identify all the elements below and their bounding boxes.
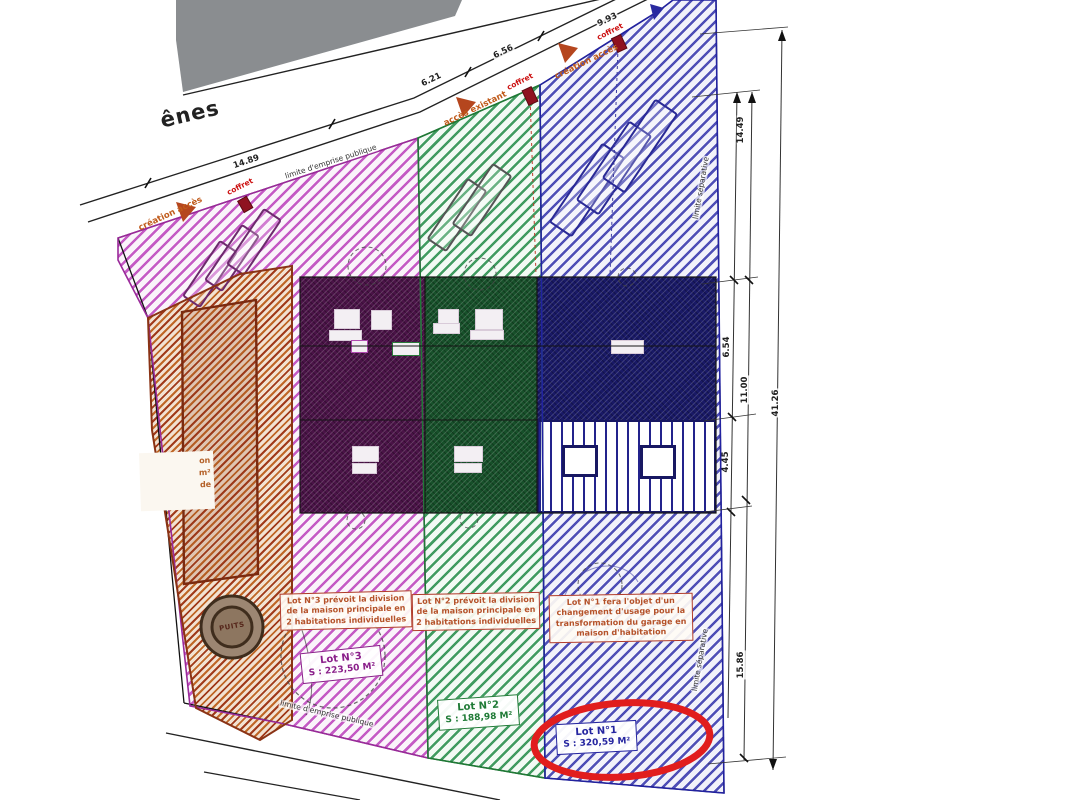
neighbor-label-box: on m² de xyxy=(139,451,215,512)
terrain-contour xyxy=(565,566,638,595)
access-arrows xyxy=(176,43,578,222)
lot-1-label-box: Lot N°1 S : 320,59 M² xyxy=(555,720,638,755)
neighbor-label-line: on xyxy=(199,456,211,465)
dimension-label-right-4: 4.45 xyxy=(722,451,731,474)
building-outline xyxy=(300,277,716,513)
road-edge-line xyxy=(204,772,360,800)
lot-3-note: Lot N°3 prévoit la division de la maison… xyxy=(280,590,413,631)
lot-2-label-box: Lot N°2 S : 188,98 M² xyxy=(437,694,520,730)
dimension-label-right-6: 15.86 xyxy=(737,651,746,680)
dimension-chain-line xyxy=(80,0,655,205)
neighbor-label-line: de xyxy=(200,480,211,489)
dimension-label-right-2: 6.54 xyxy=(723,336,732,359)
utility-line xyxy=(610,48,618,275)
lot-1-note: Lot N°1 fera l'objet d'un changement d'u… xyxy=(549,593,694,643)
lot-1-area: S : 320,59 M² xyxy=(563,736,631,751)
north-arrow xyxy=(650,4,664,20)
dimension-label-right-1: 14.49 xyxy=(737,116,746,145)
lot-2-note: Lot N°2 prévoit la division de la maison… xyxy=(412,592,541,631)
neighbor-label-line: m² xyxy=(199,468,211,477)
road-edge-line xyxy=(166,733,500,800)
dimension-label-right-5: 41.26 xyxy=(772,389,781,418)
coffret-markers xyxy=(238,35,627,213)
lot-2-boundary xyxy=(418,85,545,778)
neighbor-house-outline xyxy=(182,300,258,584)
site-division-plan: ênes 14.89 6.21 6.56 9.93 14.49 6.54 11.… xyxy=(0,0,1072,800)
dimension-label-right-3: 11.00 xyxy=(741,376,750,405)
utility-line xyxy=(530,95,536,275)
